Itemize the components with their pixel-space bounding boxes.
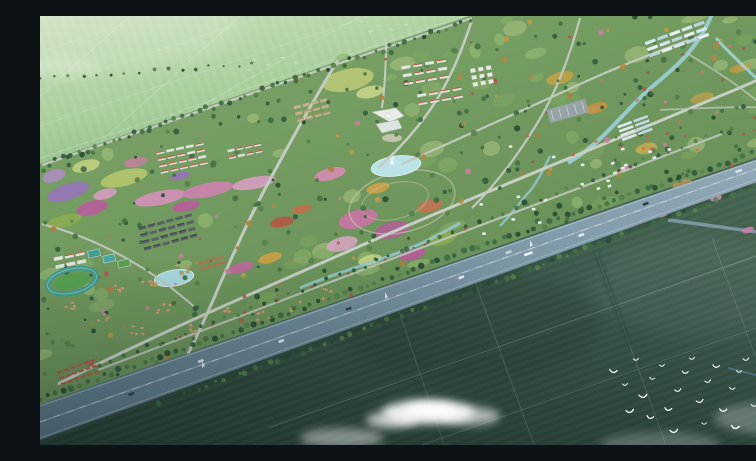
- cool-color-grade: [40, 16, 756, 445]
- cloud: [440, 407, 500, 425]
- aerial-render-canvas: [40, 16, 756, 445]
- aerial-rendering: Bird's-eye architectural rendering of a …: [40, 16, 756, 445]
- cloud: [366, 412, 418, 428]
